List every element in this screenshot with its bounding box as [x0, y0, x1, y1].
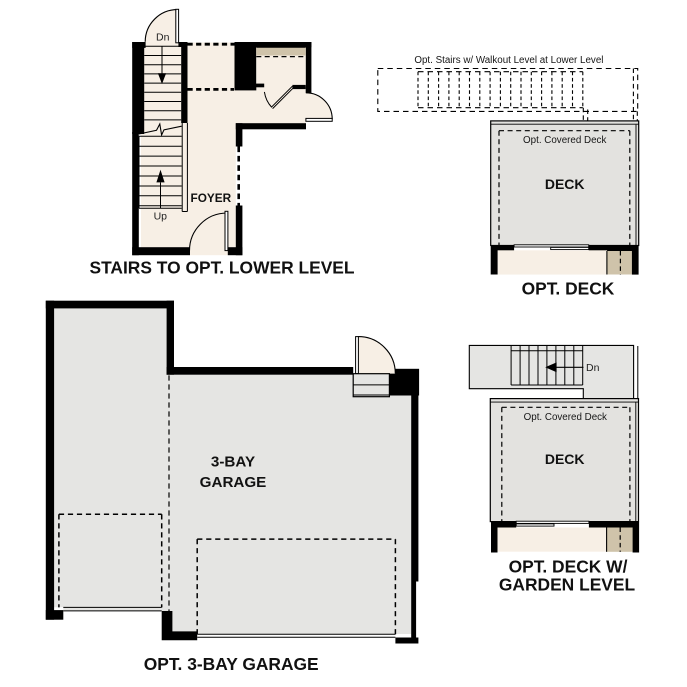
svg-text:3-BAY: 3-BAY: [211, 454, 255, 471]
svg-text:Up: Up: [154, 211, 168, 223]
svg-text:Dn: Dn: [156, 32, 170, 44]
svg-text:FOYER: FOYER: [191, 191, 232, 205]
svg-text:Opt. Covered Deck: Opt. Covered Deck: [523, 135, 606, 146]
svg-text:OPT. DECK: OPT. DECK: [522, 279, 615, 299]
svg-text:STAIRS TO OPT. LOWER LEVEL: STAIRS TO OPT. LOWER LEVEL: [89, 258, 354, 278]
svg-text:Opt. Covered Deck: Opt. Covered Deck: [524, 412, 607, 423]
svg-text:Dn: Dn: [586, 362, 600, 374]
svg-text:GARAGE: GARAGE: [200, 474, 267, 491]
svg-text:GARDEN LEVEL: GARDEN LEVEL: [499, 575, 636, 595]
svg-text:DECK: DECK: [545, 451, 585, 467]
svg-text:DECK: DECK: [545, 176, 585, 192]
svg-text:Opt. Stairs w/ Walkout Level a: Opt. Stairs w/ Walkout Level at Lower Le…: [414, 55, 603, 66]
svg-text:OPT. 3-BAY GARAGE: OPT. 3-BAY GARAGE: [144, 654, 319, 674]
svg-text:OPT. DECK W/: OPT. DECK W/: [509, 557, 628, 577]
